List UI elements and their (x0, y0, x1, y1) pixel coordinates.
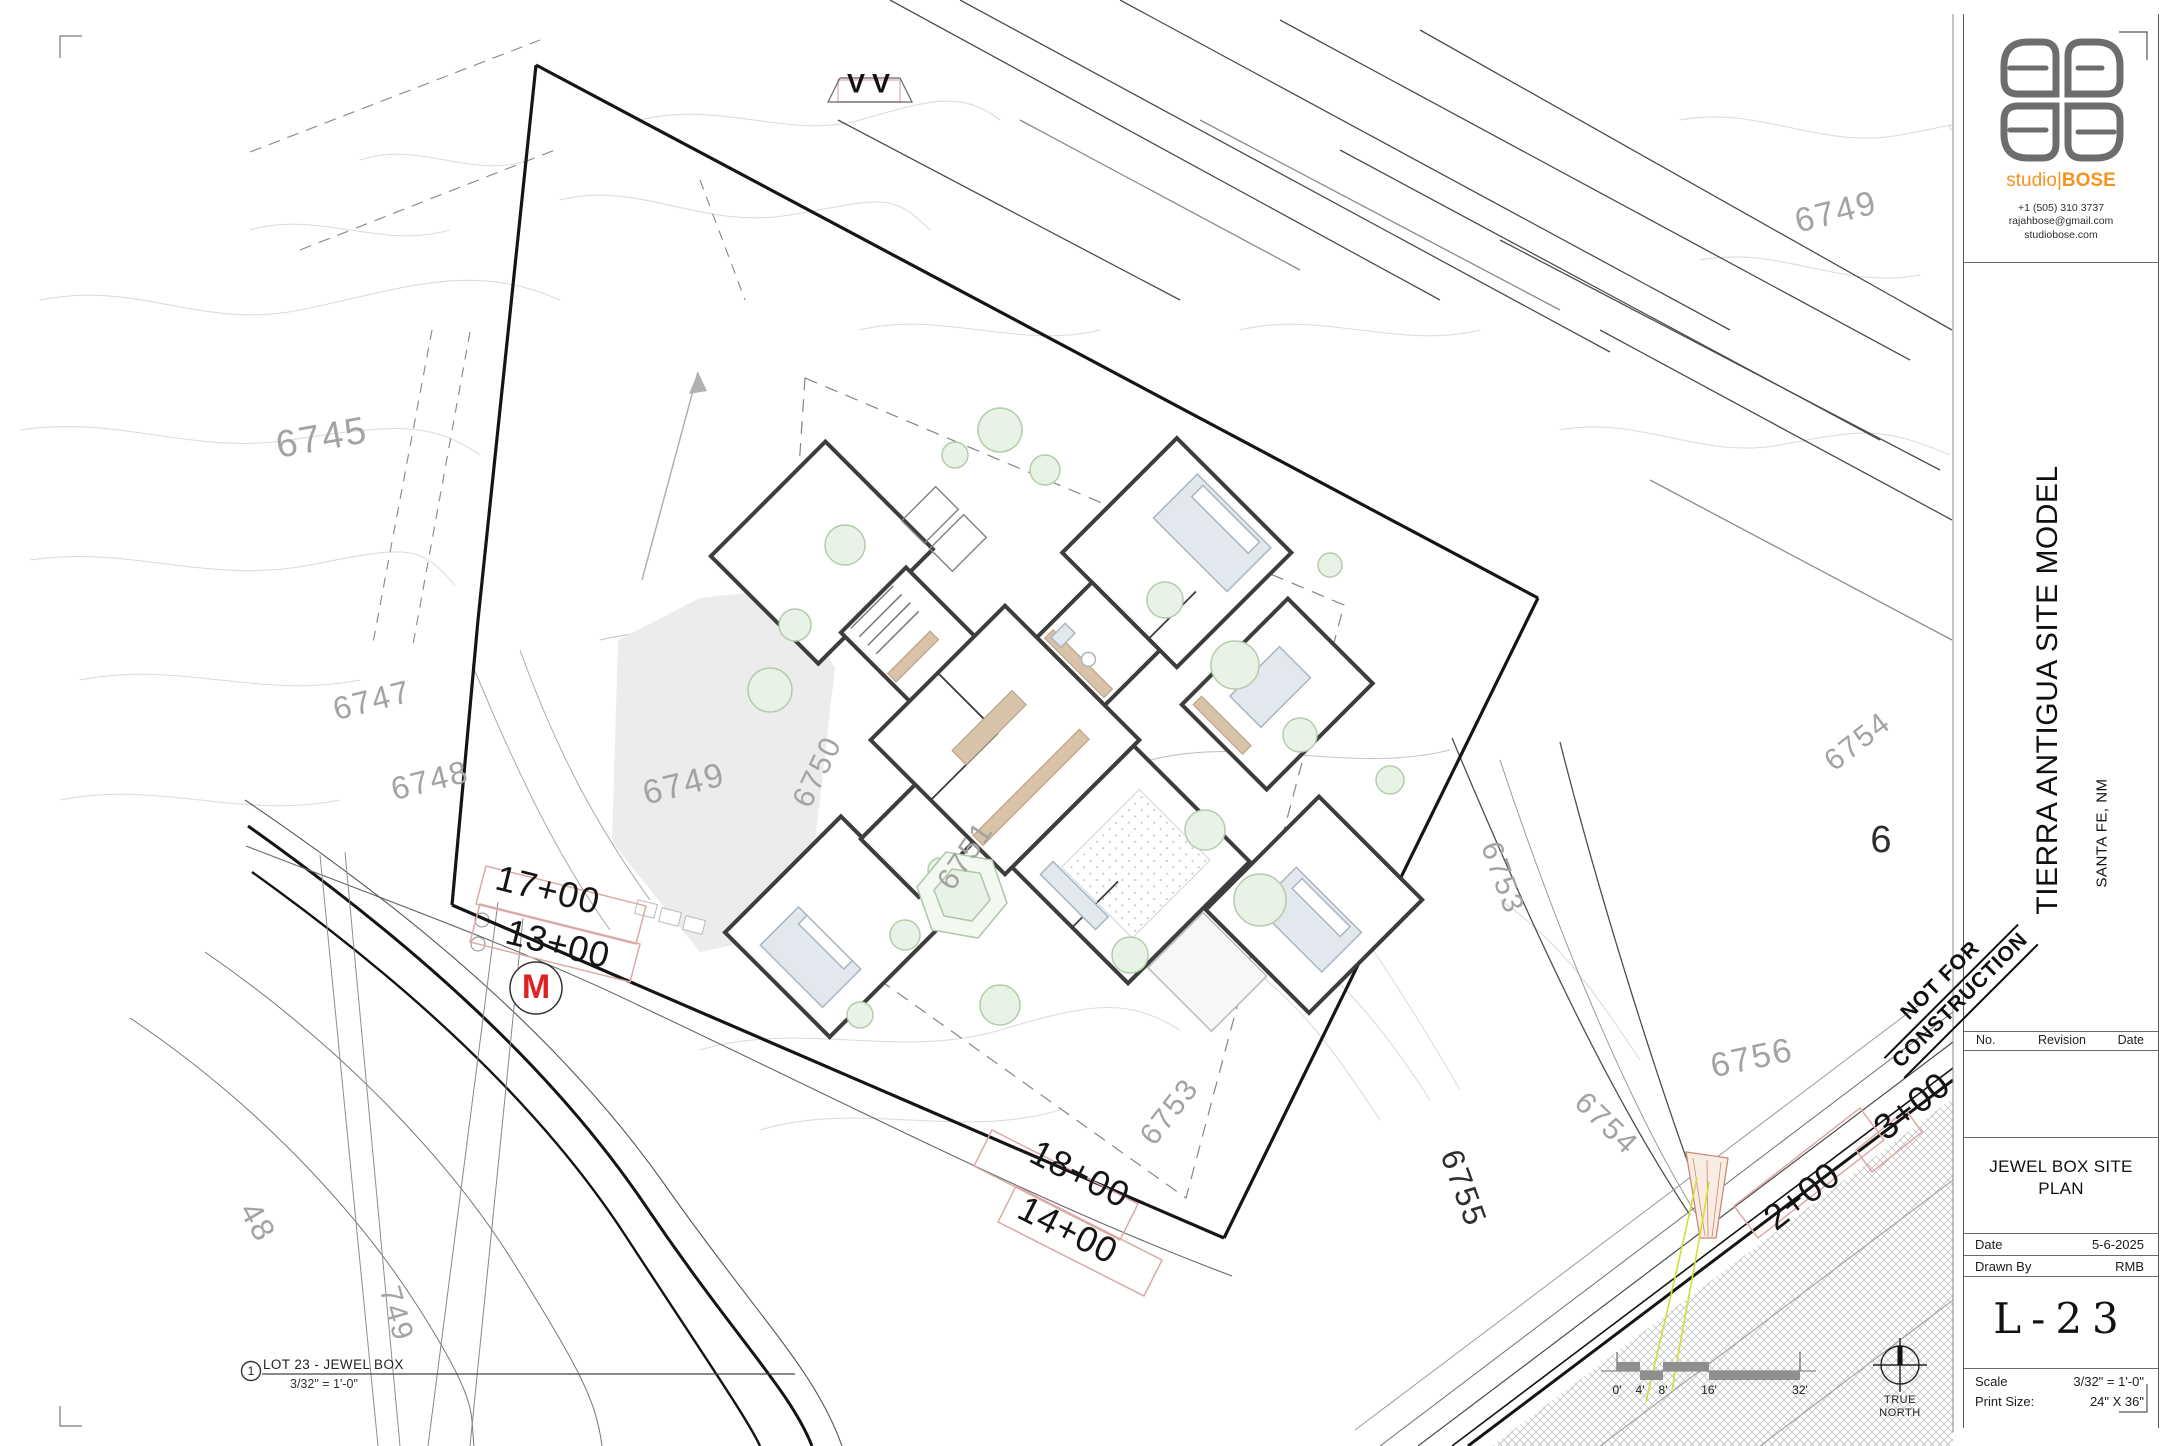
site-plan-drawing (0, 0, 2175, 1446)
view-title: LOT 23 - JEWEL BOX (263, 1357, 404, 1372)
view-number: 1 (248, 1364, 255, 1378)
scale-bar-label: 32' (1792, 1383, 1808, 1397)
scale-bar-label: 8' (1659, 1383, 1668, 1397)
utility-marker-label: M (522, 968, 550, 1007)
scale-bar-label: 4' (1636, 1383, 1645, 1397)
slope-arrow-icon (642, 372, 707, 580)
project-title: TIERRA ANTIGUA SITE MODEL (2031, 465, 2065, 914)
scale-bar-label: 16' (1701, 1383, 1717, 1397)
scale-bar-label: 0' (1613, 1383, 1622, 1397)
contour-lines (20, 101, 1952, 1130)
sheet: 6745674767486749674967506751675367536754… (0, 0, 2175, 1446)
north-label: NORTH (1879, 1407, 1920, 1419)
section-marker-label: VV (847, 69, 897, 100)
view-scale: 3/32" = 1'-0" (290, 1377, 358, 1391)
crop-marks (60, 36, 82, 1426)
north-label: TRUE (1884, 1394, 1916, 1406)
project-location: SANTA FE, NM (2094, 778, 2111, 887)
